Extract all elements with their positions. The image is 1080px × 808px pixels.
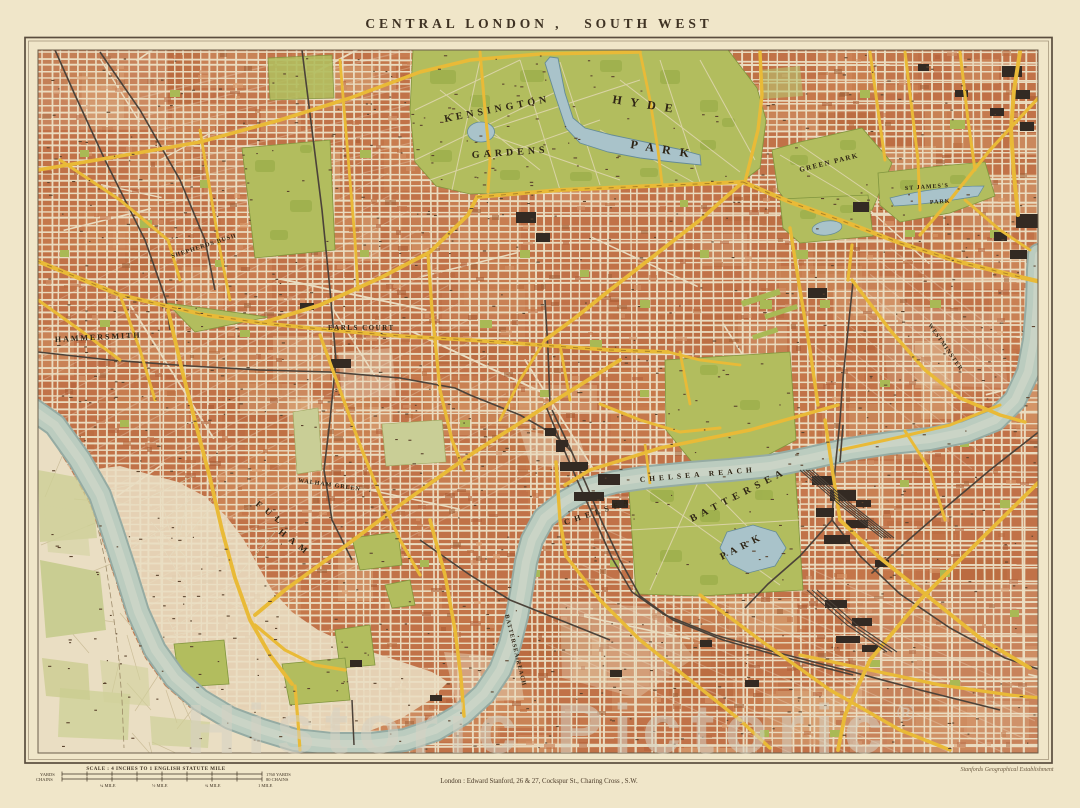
svg-text:¼ MILE: ¼ MILE (100, 783, 116, 788)
svg-text:CENTRAL LONDON , SOUTH WEST: CENTRAL LONDON , SOUTH WEST (365, 16, 712, 31)
svg-text:Stanfords Geographical Establi: Stanfords Geographical Establishment (960, 766, 1053, 773)
svg-text:EARLS COURT: EARLS COURT (328, 324, 395, 332)
svg-text:½ MILE: ½ MILE (152, 783, 168, 788)
svg-text:Historic Pictoric®: Historic Pictoric® (186, 690, 925, 768)
svg-text:London : Edward Stanford, 26 &: London : Edward Stanford, 26 & 27, Cocks… (440, 778, 638, 785)
svg-text:80 CHAINS: 80 CHAINS (266, 777, 289, 782)
svg-text:¾ MILE: ¾ MILE (205, 783, 221, 788)
svg-text:CHAINS: CHAINS (36, 777, 53, 782)
svg-text:1 MILE: 1 MILE (258, 783, 273, 788)
